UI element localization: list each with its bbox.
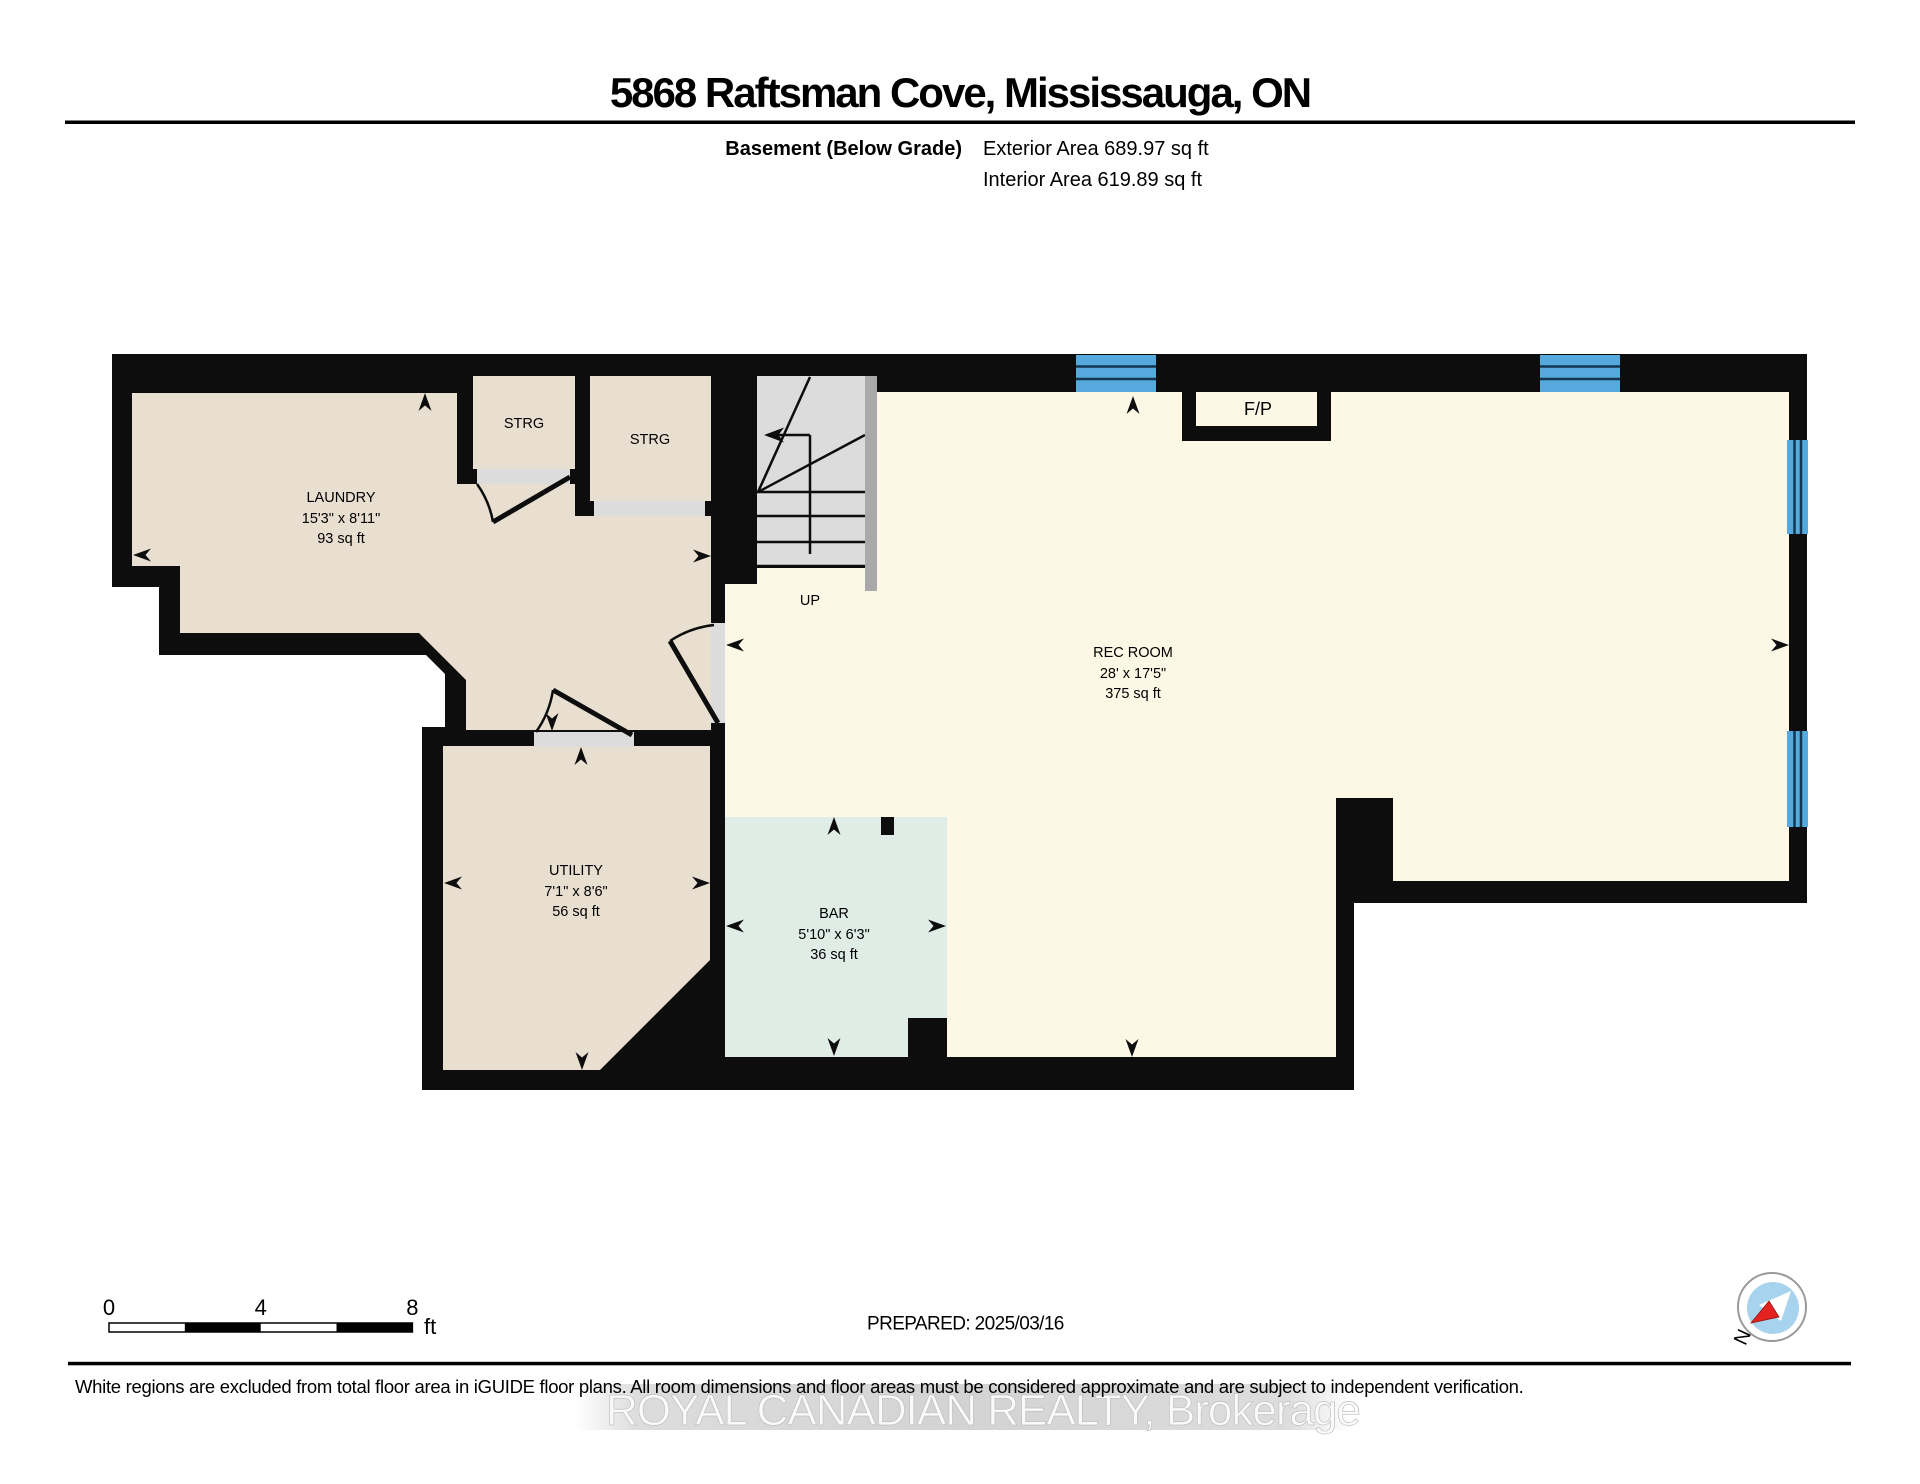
svg-text:36 sq ft: 36 sq ft (810, 947, 858, 963)
svg-text:F/P: F/P (1244, 399, 1272, 419)
svg-text:15'3" x 8'11": 15'3" x 8'11" (302, 511, 380, 527)
svg-text:93 sq ft: 93 sq ft (317, 531, 365, 547)
svg-text:28' x 17'5": 28' x 17'5" (1100, 666, 1166, 682)
svg-text:LAUNDRY: LAUNDRY (306, 490, 375, 506)
svg-text:ft: ft (424, 1314, 436, 1339)
svg-text:STRG: STRG (630, 432, 670, 448)
svg-text:PREPARED: 2025/03/16: PREPARED: 2025/03/16 (867, 1314, 1064, 1335)
svg-text:Exterior Area 689.97 sq ft: Exterior Area 689.97 sq ft (983, 138, 1209, 160)
svg-text:0: 0 (103, 1295, 115, 1320)
svg-text:5868 Raftsman Cove, Mississaug: 5868 Raftsman Cove, Mississauga, ON (610, 69, 1310, 116)
svg-text:Interior Area 619.89 sq ft: Interior Area 619.89 sq ft (983, 169, 1202, 191)
svg-text:7'1" x 8'6": 7'1" x 8'6" (544, 884, 607, 900)
svg-text:56 sq ft: 56 sq ft (552, 904, 600, 920)
svg-text:8: 8 (406, 1295, 418, 1320)
svg-text:Basement (Below Grade): Basement (Below Grade) (725, 138, 962, 160)
svg-text:4: 4 (255, 1295, 267, 1320)
svg-text:UTILITY: UTILITY (549, 863, 603, 879)
svg-text:STRG: STRG (504, 416, 544, 432)
svg-text:REC ROOM: REC ROOM (1093, 645, 1173, 661)
svg-text:5'10" x 6'3": 5'10" x 6'3" (798, 927, 869, 943)
svg-text:BAR: BAR (819, 906, 849, 922)
svg-text:375 sq ft: 375 sq ft (1105, 686, 1161, 702)
svg-text:UP: UP (800, 593, 820, 609)
svg-text:White regions are excluded fro: White regions are excluded from total fl… (75, 1376, 1524, 1397)
